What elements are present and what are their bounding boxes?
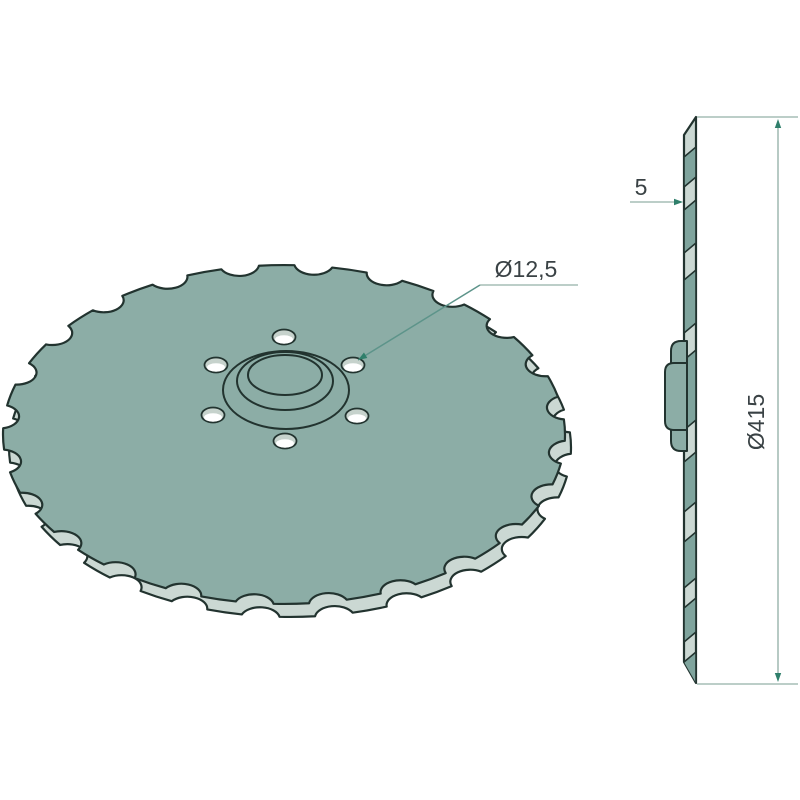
- outer-diameter-dimension: Ø415: [697, 117, 798, 684]
- bolt-hole-highlight: [348, 414, 366, 422]
- thickness-arrow: [674, 199, 683, 205]
- hole-diameter-label: Ø12,5: [495, 256, 558, 282]
- bolt-hole-highlight: [344, 363, 362, 371]
- bolt-hole-highlight: [275, 335, 293, 343]
- side-notch-stripe: [684, 200, 696, 253]
- thickness-label: 5: [635, 174, 648, 200]
- outer-diameter-label: Ø415: [743, 394, 769, 450]
- side-notch-stripe: [684, 452, 696, 512]
- side-notch-stripe: [684, 532, 696, 588]
- technical-drawing-notched-disc: Ø12,5 5 Ø415: [0, 0, 800, 800]
- front-view-notched-disc: Ø12,5: [3, 256, 578, 617]
- side-notch-stripe: [684, 270, 696, 333]
- side-view-disc-profile: 5 Ø415: [630, 117, 798, 692]
- bolt-hole-highlight: [276, 439, 294, 447]
- hub-profile-inner-bump: [665, 363, 687, 430]
- thickness-dimension: 5: [630, 174, 683, 205]
- bolt-hole-highlight: [207, 363, 225, 371]
- diameter-arrow-bottom: [775, 673, 781, 682]
- bolt-hole-highlight: [204, 413, 222, 421]
- diameter-arrow-top: [775, 119, 781, 128]
